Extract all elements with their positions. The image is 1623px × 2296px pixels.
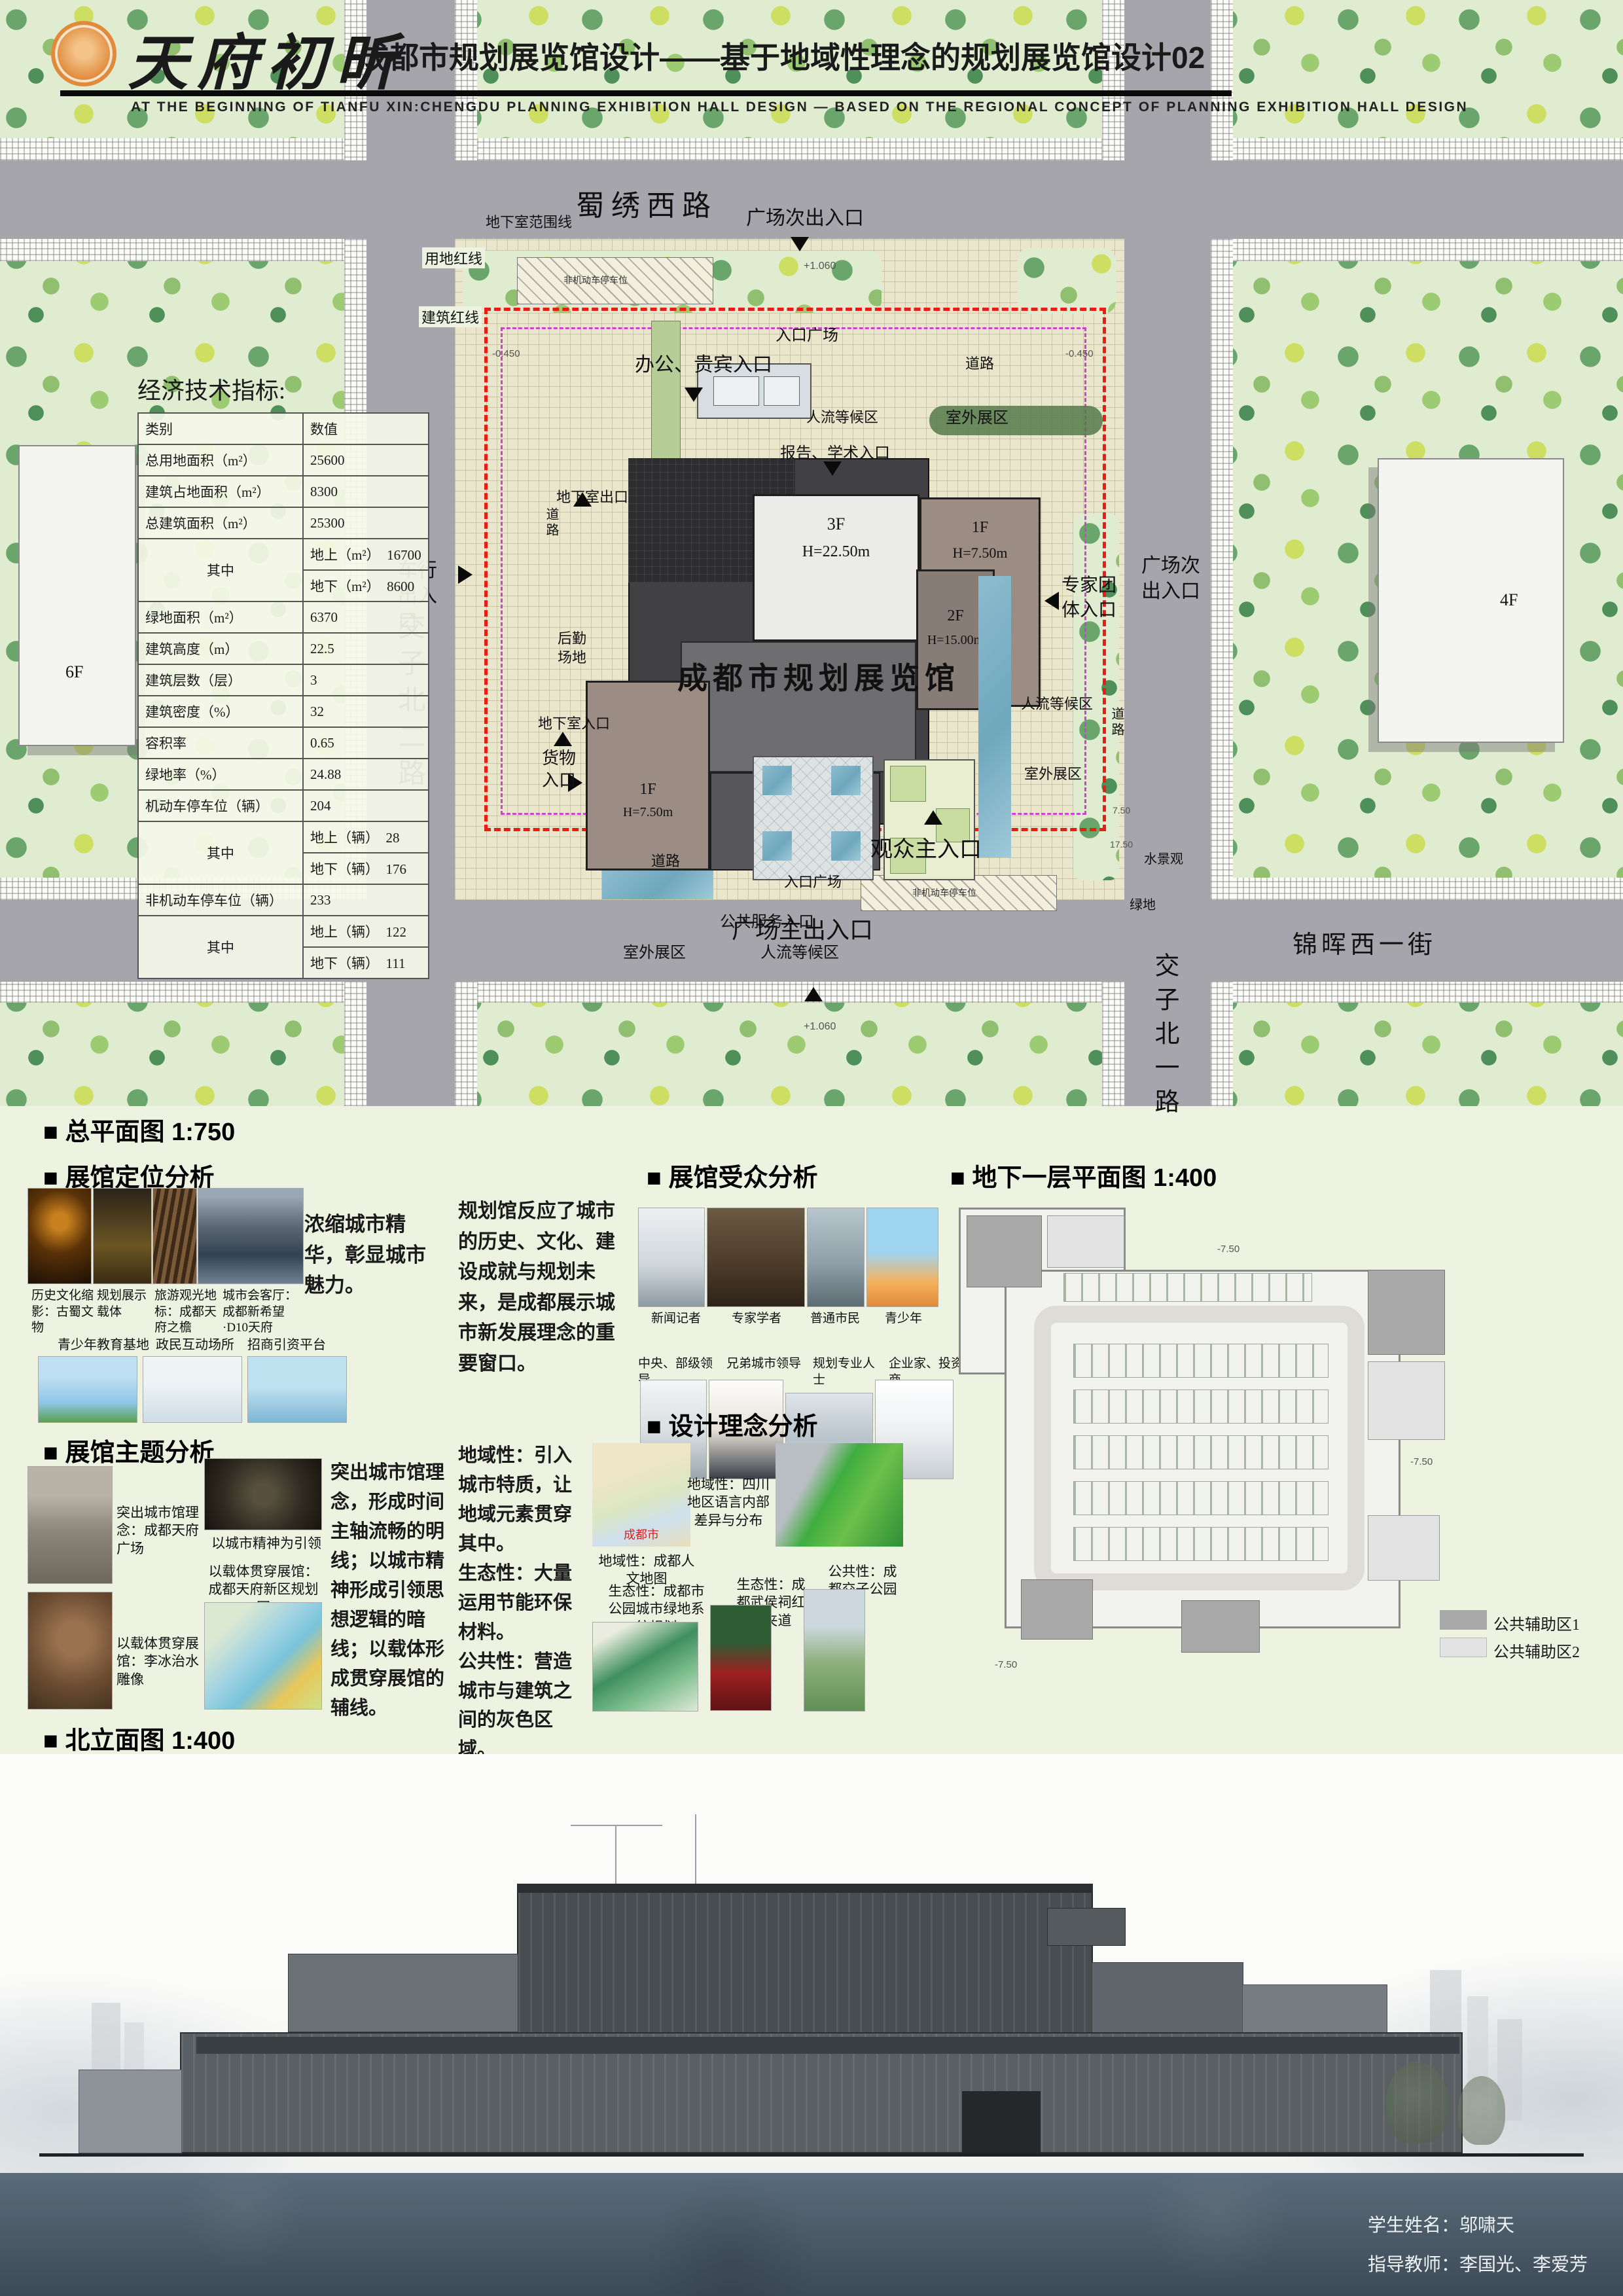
elevation-upper-parapet: [517, 1884, 1093, 1893]
sub-label: 地上（m²）: [310, 547, 380, 563]
poster-subtitle: AT THE BEGINNING OF TIANFU XIN:CHENGDU P…: [131, 99, 1468, 115]
bike-parking-area-south: 非机动车停车位: [861, 875, 1057, 911]
header: 天府初昕 成都市规划展览馆设计——基于地域性理念的规划展览馆设计02 AT TH…: [0, 0, 1623, 118]
map-chengdu-humanistic: 成都市: [592, 1443, 690, 1547]
audience-statement: 规划馆反应了城市的历史、文化、建设成就与规划未来，是成都展示城市新发展理念的重要…: [458, 1196, 632, 1379]
photo-city-lounge: [198, 1188, 304, 1284]
label-plaza-main-exit: 广场主出入口: [732, 911, 873, 945]
road-name-south: 锦晖西一街: [1293, 924, 1436, 960]
sub-label: 地下（m²）: [310, 579, 380, 594]
elevation-drawing: [0, 1754, 1623, 2173]
section-title-audience: ■ 展馆受众分析: [647, 1157, 818, 1193]
water-pool-southwest: [602, 870, 713, 899]
basement-legend: 公共辅助区1 公共辅助区2: [1440, 1610, 1610, 1665]
label-building-red-line: 建筑红线: [419, 306, 482, 327]
caption-theme-3: 以载体贯穿展馆：李冰治水雕像: [116, 1635, 202, 1689]
row-label: 建筑占地面积（m²）: [138, 476, 303, 507]
row-value: 233: [303, 884, 429, 916]
footer-band: 学生姓名：邬啸天 指导教师：李国光、李爱芳: [0, 2173, 1623, 2296]
tree-silhouette: [1458, 2076, 1505, 2145]
row-value: 地下（辆） 176: [303, 853, 429, 884]
context-building-east-label: 4F: [1500, 590, 1518, 610]
row-label: 其中: [138, 821, 303, 884]
aux-zone-2: [1368, 1361, 1445, 1440]
row-label: 非机动车停车位（辆）: [138, 884, 303, 916]
road-name-east: 交子北一路: [1147, 952, 1183, 1122]
photo-experts: [707, 1208, 805, 1307]
row-value: 32: [303, 696, 429, 727]
footer-advisors: 指导教师：李国光、李爱芳: [1368, 2250, 1588, 2276]
entry-canopy-inner: [764, 376, 800, 406]
indicators-title: 经济技术指标:: [137, 372, 429, 406]
label-water-feature: 水景观: [1144, 848, 1183, 867]
tree-silhouette: [1386, 2062, 1448, 2144]
sub-value: 8600: [387, 579, 414, 594]
row-label: 建筑高度（m）: [138, 633, 303, 664]
label-road-bottom: 道路: [651, 850, 680, 870]
dimension-leader: [695, 1814, 696, 1884]
context-building-east: 4F: [1378, 458, 1564, 743]
bike-parking-area-north: 非机动车停车位: [517, 257, 713, 304]
label-crowd-waiting-top: 人流等候区: [806, 406, 878, 427]
main-building-label: 成都市规划展览馆: [677, 655, 960, 698]
sub-label: 地上（辆）: [310, 924, 379, 940]
entrance-arrow: [823, 461, 842, 476]
row-value: 22.5: [303, 633, 429, 664]
label-basement-exit: 地下室出口: [556, 486, 628, 507]
label-office-vip: 办公、贵宾入口: [635, 348, 772, 377]
legend-label-aux1: 公共辅助区1: [1493, 1611, 1580, 1634]
row-value: 3: [303, 664, 429, 696]
sub-label: 地上（辆）: [310, 830, 379, 846]
dimension-leader: [615, 1825, 616, 1884]
ground-line: [39, 2153, 1584, 2157]
indicators-panel: 经济技术指标: 类别数值 总用地面积（m²）25600 建筑占地面积（m²）83…: [137, 372, 429, 979]
caption-audience-7: 规划专业人士: [813, 1356, 885, 1388]
row-value: 6370: [303, 601, 429, 633]
row-value: 24.88: [303, 759, 429, 790]
photo-greenspace-plan: [592, 1622, 698, 1712]
block-3f-top: 3F H=22.50m: [753, 494, 919, 641]
sidewalk: [0, 138, 1623, 160]
level-mark-bottom: +1.060: [804, 1021, 836, 1033]
theme-statement: 突出城市馆理念，形成时间主轴流畅的明线；以城市精神形成引领思想逻辑的暗线；以载体…: [330, 1458, 452, 1723]
label-logistics-yard: 后勤场地: [558, 630, 592, 667]
courtyard-pool: [762, 766, 792, 795]
row-label: 总建筑面积（m²）: [138, 507, 303, 539]
basement-level: -7.50: [995, 1659, 1017, 1670]
aux-zone-1: [1368, 1270, 1445, 1355]
elevation-right-mid-mass: [1092, 1962, 1243, 2033]
label-road-left: 道路: [542, 507, 561, 539]
row-value: 25300: [303, 507, 429, 539]
elevation-base-band: [196, 2037, 1459, 2054]
photo-youth-education: [38, 1356, 137, 1423]
context-building-west-label: 6F: [65, 662, 83, 682]
label-road-e: 道路: [1107, 707, 1126, 738]
photo-tianfu-square: [27, 1466, 113, 1584]
caption-audience-4: 青少年: [885, 1311, 931, 1327]
block-height: H=7.50m: [588, 805, 708, 820]
sub-label: 地下（辆）: [310, 861, 379, 877]
courtyard-pool: [762, 831, 792, 861]
label-cargo-entrance: 货物入口: [542, 747, 579, 792]
photo-red-wall-lane: [710, 1605, 772, 1711]
row-value: 25600: [303, 444, 429, 476]
row-value: 地上（辆） 122: [303, 916, 429, 947]
label-basement-range-line: 地下室范围线: [486, 211, 572, 232]
elevation-right-low-mass: [1242, 1984, 1387, 2033]
photo-youth: [866, 1208, 938, 1307]
garden-patch: [890, 766, 926, 802]
row-value: 0.65: [303, 727, 429, 759]
sub-value: 28: [386, 830, 400, 846]
siteplan-caption: ■ 总平面图 1:750: [43, 1111, 235, 1147]
photo-artifact: [27, 1188, 92, 1284]
elevation-entrance: [962, 2091, 1041, 2153]
col-category: 类别: [138, 413, 303, 444]
level-mark-left: -0.450: [492, 348, 520, 359]
footer-student-name: 学生姓名：邬啸天: [1368, 2211, 1514, 2237]
elevation-upper-mass: [517, 1884, 1093, 2034]
parcel-trees-top-right: [1018, 248, 1116, 314]
label-report-academic: 报告、学术入口: [780, 440, 890, 463]
photo-civic-interaction: [143, 1356, 242, 1423]
level-mark-right: -0.450: [1065, 348, 1094, 359]
dim-label: 17.50: [1110, 839, 1133, 850]
entry-canopy-inner: [713, 376, 759, 406]
section-title-theme: ■ 展馆主题分析: [43, 1432, 215, 1468]
entrance-arrow: [924, 810, 942, 825]
row-value: 地上（m²） 16700: [303, 539, 429, 570]
entrance-arrow: [804, 987, 823, 1001]
caption-positioning-7: 招商引资平台: [247, 1336, 346, 1354]
bike-parking-label: 非机动车停车位: [563, 274, 628, 287]
sub-value: 16700: [387, 547, 421, 563]
section-title-basement: ■ 地下一层平面图 1:400: [950, 1157, 1217, 1193]
poster-title: 成都市规划展览馆设计——基于地域性理念的规划展览馆设计02: [359, 34, 1205, 77]
courtyard-pool: [831, 831, 861, 861]
level-mark-top: +1.060: [804, 260, 836, 272]
entrance-arrow: [458, 565, 473, 584]
dimension-leader: [571, 1825, 662, 1826]
water-channel-east: [978, 576, 1011, 857]
legend-swatch-aux2: [1440, 1638, 1487, 1657]
label-crowd-waiting-e: 人流等候区: [1021, 692, 1093, 713]
block-height: H=7.50m: [921, 545, 1039, 562]
photo-citizens: [807, 1208, 865, 1307]
parking-stalls: [1063, 1273, 1312, 1302]
context-building-west: 6F: [18, 445, 136, 746]
photo-investment: [247, 1356, 347, 1423]
dim-label: 7.50: [1113, 805, 1130, 816]
sub-value: 176: [386, 861, 407, 877]
caption-audience-6: 兄弟城市领导: [726, 1356, 805, 1372]
indicators-table: 类别数值 总用地面积（m²）25600 建筑占地面积（m²）8300 总建筑面积…: [137, 412, 429, 979]
row-value: 8300: [303, 476, 429, 507]
poster: 非机动车停车位 非机动车停车位 3F H=22.50m 1F H=7.50m: [0, 0, 1623, 2296]
label-plaza-secondary-exit-top: 广场次出入口: [746, 202, 864, 230]
row-value: 地下（辆） 111: [303, 947, 429, 978]
photo-jiaozi-park: [804, 1589, 865, 1712]
caption-positioning-3: 旅游观光地标：成都天府之檐: [154, 1288, 220, 1336]
parking-stalls: [1073, 1390, 1329, 1424]
section-title-concept: ■ 设计理念分析: [647, 1406, 818, 1442]
legend-swatch-aux1: [1440, 1610, 1487, 1630]
block-floor: 1F: [588, 781, 708, 798]
elevation-left-wing: [79, 2070, 182, 2153]
row-label: 建筑密度（%）: [138, 696, 303, 727]
row-label: 总用地面积（m²）: [138, 444, 303, 476]
aux-zone-1: [1181, 1600, 1260, 1653]
block-floor: 3F: [755, 514, 918, 534]
road-name-north: 蜀绣西路: [576, 182, 717, 224]
row-label: 机动车停车位（辆）: [138, 790, 303, 821]
aux-zone-1: [1021, 1579, 1093, 1640]
caption-positioning-6: 政民互动场所: [156, 1336, 254, 1354]
label-entrance-plaza-top: 入口广场: [776, 322, 838, 345]
label-outdoor-exhibit-ne: 室外展区: [946, 404, 1008, 427]
aux-zone-1: [967, 1215, 1042, 1287]
parking-stalls: [1073, 1527, 1329, 1561]
map-chengdu-label: 成都市: [624, 1526, 659, 1543]
caption-positioning-2: 规划展示载体: [97, 1288, 152, 1320]
label-plaza-secondary-exit-right: 广场次出入口: [1141, 553, 1207, 604]
caption-audience-3: 普通市民: [810, 1311, 869, 1327]
photo-chengdu-life: [93, 1188, 152, 1284]
row-label: 其中: [138, 539, 303, 601]
photo-libing-statue: [27, 1592, 113, 1710]
concept-statement: 地域性：引入城市特质，让地域元素贯穿其中。 生态性：大量运用节能环保材料。 公共…: [458, 1441, 589, 1765]
col-value: 数值: [303, 413, 429, 444]
label-visitor-main: 观众主入口: [870, 831, 982, 863]
sub-label: 地下（辆）: [310, 956, 379, 971]
row-label: 绿地面积（m²）: [138, 601, 303, 633]
label-expert-entrance: 专家团体入口: [1061, 573, 1127, 623]
block-floor: 1F: [921, 519, 1039, 537]
photo-city-spirit-plaque: [204, 1458, 322, 1530]
row-value: 地下（m²） 8600: [303, 570, 429, 601]
basement-level: -7.50: [1410, 1456, 1433, 1467]
elevation-roof-box: [1047, 1908, 1126, 1946]
label-outdoor-exhibit-sw: 室外展区: [623, 939, 686, 962]
row-value: 204: [303, 790, 429, 821]
caption-theme-1: 突出城市馆理念：成都天府广场: [116, 1504, 202, 1558]
block-1f-left: 1F H=7.50m: [586, 681, 710, 870]
entrance-arrow: [554, 732, 572, 746]
label-land-red-line: 用地红线: [422, 247, 485, 268]
positioning-statement: 浓缩城市精华，彰显城市魅力。: [304, 1210, 438, 1301]
label-basement-entrance: 地下室入口: [538, 712, 610, 733]
elevation-left-mid-mass: [288, 1954, 518, 2032]
block-height: H=22.50m: [755, 543, 918, 561]
caption-positioning-4: 城市会客厅：成都新希望·D10天府: [223, 1288, 308, 1336]
photo-tianfu-newarea-map: [204, 1602, 322, 1710]
caption-audience-2: 专家学者: [732, 1311, 791, 1327]
bike-parking-label: 非机动车停车位: [912, 886, 976, 899]
section-title-elevation: ■ 北立面图 1:400: [43, 1720, 235, 1756]
row-label: 绿地率（%）: [138, 759, 303, 790]
basement-plan: -7.50 -7.50 -7.50: [959, 1208, 1469, 1705]
map-sichuan-language: [776, 1443, 903, 1547]
parking-stalls: [1073, 1481, 1329, 1515]
label-entrance-plaza-bottom: 入口广场: [784, 870, 842, 891]
caption-positioning-1: 历史文化缩影：古蜀文物: [31, 1288, 97, 1336]
entrance-arrow: [791, 237, 809, 251]
parking-stalls: [1073, 1435, 1329, 1469]
entrance-arrow: [1044, 592, 1059, 610]
title-rule: [60, 90, 1232, 96]
courtyard-pool: [831, 766, 861, 795]
photo-tianfu-eave: [152, 1188, 197, 1284]
label-road-top: 道路: [965, 352, 994, 373]
row-value: 地上（辆） 28: [303, 821, 429, 853]
label-green-space: 绿地: [1130, 894, 1156, 913]
sub-value: 111: [386, 956, 406, 971]
row-label: 建筑层数（层）: [138, 664, 303, 696]
aux-zone-2: [1368, 1515, 1440, 1581]
row-label: 其中: [138, 916, 303, 978]
legend-label-aux2: 公共辅助区2: [1493, 1639, 1580, 1662]
basement-level: -7.50: [1217, 1244, 1240, 1255]
entrance-arrow: [685, 387, 703, 402]
sub-value: 122: [386, 924, 407, 940]
caption-theme-2: 以城市精神为引领: [211, 1535, 322, 1552]
row-label: 容积率: [138, 727, 303, 759]
label-outdoor-exhibit-e: 室外展区: [1024, 762, 1082, 783]
caption-positioning-5: 青少年教育基地: [58, 1336, 162, 1354]
parking-stalls: [1073, 1344, 1329, 1378]
photo-journalists: [638, 1208, 705, 1307]
caption-concept-2: 地域性：四川地区语言内部差异与分布: [686, 1476, 771, 1530]
aux-zone-2: [1047, 1215, 1124, 1268]
logo-seal: [51, 21, 116, 86]
caption-audience-1: 新闻记者: [651, 1311, 710, 1327]
